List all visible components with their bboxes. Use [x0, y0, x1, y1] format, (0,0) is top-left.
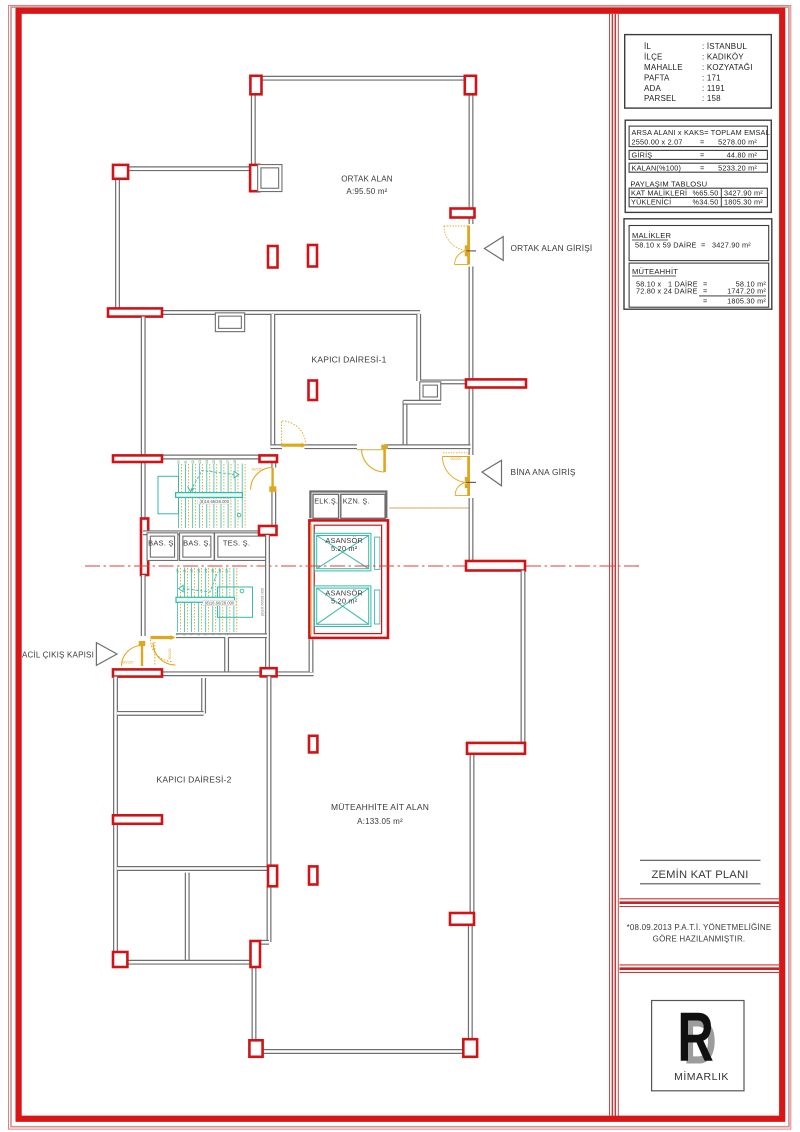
svg-text:BİNA ANA GİRİŞ: BİNA ANA GİRİŞ [511, 467, 576, 477]
svg-text:PAFTA: PAFTA [644, 73, 670, 82]
svg-text:44.80 m²: 44.80 m² [727, 151, 758, 160]
svg-text:14: 14 [205, 460, 209, 464]
svg-text:6: 6 [197, 633, 201, 635]
svg-text:5233.20 m²: 5233.20 m² [718, 163, 757, 172]
svg-text:90/220: 90/220 [123, 661, 134, 665]
svg-text:(8)16.66/28.000: (8)16.66/28.000 [205, 600, 235, 605]
svg-text:ADA: ADA [644, 84, 662, 93]
svg-text:PAYLAŞIM TABLOSU: PAYLAŞIM TABLOSU [630, 180, 707, 189]
svg-text:10: 10 [177, 460, 181, 464]
svg-text:BAS. Ş.: BAS. Ş. [148, 538, 176, 547]
svg-text:İL: İL [644, 42, 651, 51]
svg-text:: KADIKÖY: : KADIKÖY [702, 52, 744, 61]
svg-text:KZN. Ş.: KZN. Ş. [343, 496, 370, 505]
svg-text:58.10 x 59 DAİRE: 58.10 x 59 DAİRE [635, 240, 697, 249]
svg-text:14: 14 [204, 569, 208, 573]
svg-text:5: 5 [204, 633, 208, 635]
svg-text:%65.50: %65.50 [693, 188, 719, 197]
svg-text:72.80 x 24 DAİRE: 72.80 x 24 DAİRE [636, 286, 698, 295]
svg-text:16: 16 [218, 569, 222, 573]
svg-text:90/220: 90/220 [168, 649, 172, 660]
svg-text:13: 13 [197, 569, 201, 573]
svg-text:2: 2 [225, 633, 229, 635]
svg-text:12: 12 [191, 460, 195, 464]
svg-text:11: 11 [184, 460, 188, 464]
svg-text:TES. Ş.: TES. Ş. [223, 538, 250, 547]
svg-text:A:95.50 m²: A:95.50 m² [346, 187, 387, 196]
svg-text:GÖRE HAZILANMIŞTIR.: GÖRE HAZILANMIŞTIR. [653, 934, 746, 943]
svg-text:MÜTEAHHİTE AİT ALAN: MÜTEAHHİTE AİT ALAN [331, 802, 429, 812]
svg-text:ACİL ÇIKIŞ KAPISI: ACİL ÇIKIŞ KAPISI [22, 651, 94, 660]
svg-text:13: 13 [198, 460, 202, 464]
svg-text:(8)16.66/28.000: (8)16.66/28.000 [200, 499, 230, 504]
svg-text:9: 9 [176, 633, 180, 635]
svg-text:: İSTANBUL: : İSTANBUL [702, 42, 747, 51]
svg-text:15: 15 [211, 569, 215, 573]
svg-text:BAS. Ş.: BAS. Ş. [183, 538, 211, 547]
svg-text:ORTAK ALAN: ORTAK ALAN [341, 175, 393, 184]
svg-text:PARSEL: PARSEL [644, 94, 677, 103]
svg-text:10: 10 [176, 569, 180, 573]
svg-text:90/220: 90/220 [252, 468, 263, 472]
svg-text:KAPICI DAİRESİ-1: KAPICI DAİRESİ-1 [312, 355, 387, 365]
svg-text:12: 12 [190, 569, 194, 573]
svg-text:İLÇE: İLÇE [644, 52, 663, 61]
svg-text:ELK.Ş.: ELK.Ş. [314, 496, 338, 505]
svg-text:4: 4 [211, 633, 215, 635]
svg-text:ORTAK ALAN GİRİŞİ: ORTAK ALAN GİRİŞİ [511, 243, 593, 253]
svg-text:15: 15 [212, 460, 216, 464]
svg-text:%34.50: %34.50 [693, 198, 719, 207]
svg-text:3427.90 m²: 3427.90 m² [724, 188, 763, 197]
svg-text:YÜKLENİCİ: YÜKLENİCİ [631, 198, 671, 207]
svg-text:90/220: 90/220 [451, 457, 462, 461]
svg-text:5278.00 m²: 5278.00 m² [718, 137, 757, 146]
svg-text:ARSA ALANI x KAKS= TOPLAM EMSA: ARSA ALANI x KAKS= TOPLAM EMSAL [632, 128, 770, 137]
svg-text:ZEMİN KAT PLANI: ZEMİN KAT PLANI [651, 868, 748, 881]
svg-text:MÜTEAHHİT: MÜTEAHHİT [632, 267, 678, 276]
svg-text:MİMARLIK: MİMARLIK [674, 1070, 729, 1083]
svg-text:: 1191: : 1191 [702, 84, 725, 93]
svg-text:: 158: : 158 [702, 94, 721, 103]
svg-text:=: = [700, 137, 704, 146]
svg-text:MAHALLE: MAHALLE [644, 63, 683, 72]
svg-text:7: 7 [190, 633, 194, 635]
svg-text:=: = [703, 286, 707, 295]
svg-text:*08.09.2013 P.A.T.İ. YÖNETMELİ: *08.09.2013 P.A.T.İ. YÖNETMELİĞİNE [627, 923, 772, 932]
svg-text:: 171: : 171 [702, 73, 721, 82]
svg-text:3: 3 [218, 633, 222, 635]
svg-text:2550.00 x 2.07: 2550.00 x 2.07 [632, 137, 683, 146]
svg-text:16: 16 [219, 460, 223, 464]
svg-text:5.20 m²: 5.20 m² [331, 597, 358, 606]
svg-text:=: = [701, 240, 705, 249]
svg-text:=: = [700, 151, 704, 160]
svg-text:: KOZYATAĞI: : KOZYATAĞI [702, 63, 753, 72]
svg-text:KAT MALİKLERİ: KAT MALİKLERİ [631, 188, 687, 197]
svg-text:3427.90 m²: 3427.90 m² [712, 240, 751, 249]
svg-text:1805.30 m²: 1805.30 m² [727, 296, 766, 305]
svg-text:5.20 m²: 5.20 m² [331, 544, 358, 553]
svg-text:17: 17 [226, 460, 230, 464]
svg-text:11: 11 [183, 569, 187, 573]
svg-text:17: 17 [225, 569, 229, 573]
svg-text:KAPICI DAİRESİ-2: KAPICI DAİRESİ-2 [157, 775, 232, 785]
svg-text:KALAN(%100): KALAN(%100) [632, 163, 682, 172]
svg-text:18: 18 [233, 460, 237, 464]
svg-text:A:133.05 m²: A:133.05 m² [357, 817, 403, 826]
svg-text:1747.20 m²: 1747.20 m² [727, 286, 766, 295]
svg-text:GİRİŞ: GİRİŞ [632, 151, 653, 160]
svg-text:8: 8 [183, 633, 187, 635]
svg-text:R: R [677, 997, 713, 1075]
svg-text:MALİKLER: MALİKLER [632, 231, 671, 240]
svg-text:1805.30 m²: 1805.30 m² [724, 198, 763, 207]
svg-text:=: = [703, 296, 707, 305]
svg-text:=: = [700, 163, 704, 172]
svg-text:(8)16.66/28.000: (8)16.66/28.000 [260, 587, 265, 616]
